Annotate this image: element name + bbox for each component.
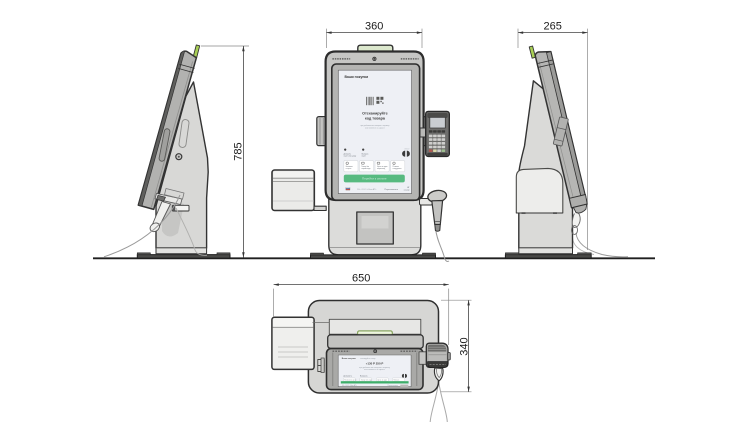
svg-text:они появятся на экране: они появятся на экране bbox=[364, 369, 385, 371]
svg-text:Выбрать: Выбрать bbox=[360, 376, 368, 378]
svg-text:ОООО: ОООО bbox=[404, 148, 410, 150]
svg-text:360: 360 bbox=[365, 20, 383, 32]
svg-text:сотрудника: сотрудника bbox=[393, 168, 402, 170]
svg-text:265: 265 bbox=[544, 20, 562, 32]
svg-text:Переключить: Переключить bbox=[385, 189, 399, 191]
svg-text:Цена за один: Цена за один bbox=[377, 379, 387, 381]
svg-text:сканер: сканер bbox=[404, 189, 410, 191]
svg-text:Перейти к оплате: Перейти к оплате bbox=[362, 177, 387, 181]
svg-text:+130 Р 250 Р: +130 Р 250 Р bbox=[366, 361, 384, 365]
svg-text:785: 785 bbox=[233, 142, 245, 160]
svg-text:Отсканируйте: Отсканируйте bbox=[362, 111, 387, 115]
svg-text:Позвать: Позвать bbox=[393, 379, 399, 381]
svg-text:Ваши покупки: Ваши покупки bbox=[342, 358, 357, 360]
svg-text:штрих-кода: штрих-кода bbox=[361, 168, 370, 170]
svg-text:Ваши покупки: Ваши покупки bbox=[345, 75, 369, 79]
svg-text:штрих-код: штрих-код bbox=[377, 168, 385, 170]
svg-text:18+ ООО «Чек-АТ»: 18+ ООО «Чек-АТ» bbox=[342, 384, 357, 387]
svg-text:сканируйте товар: сканируйте товар bbox=[360, 357, 375, 360]
svg-text:код товара: код товара bbox=[365, 116, 386, 120]
svg-text:18+ ООО «Чек-АТ»: 18+ ООО «Чек-АТ» bbox=[357, 188, 377, 191]
svg-text:340: 340 bbox=[458, 337, 470, 355]
svg-text:650: 650 bbox=[352, 272, 370, 284]
svg-text:пакет или сумку: пакет или сумку bbox=[344, 156, 357, 158]
svg-text:пакет: пакет bbox=[362, 156, 366, 158]
svg-text:Товар без кода: Товар без кода bbox=[361, 379, 372, 381]
svg-text:Добавить: Добавить bbox=[344, 376, 352, 378]
svg-text:Наличие и цены: Наличие и цены bbox=[344, 379, 357, 381]
svg-text:и цены: и цены bbox=[346, 168, 352, 170]
svg-text:Переключить: Переключить bbox=[388, 385, 399, 387]
svg-text:они появятся на экране: они появятся на экране bbox=[365, 127, 385, 129]
